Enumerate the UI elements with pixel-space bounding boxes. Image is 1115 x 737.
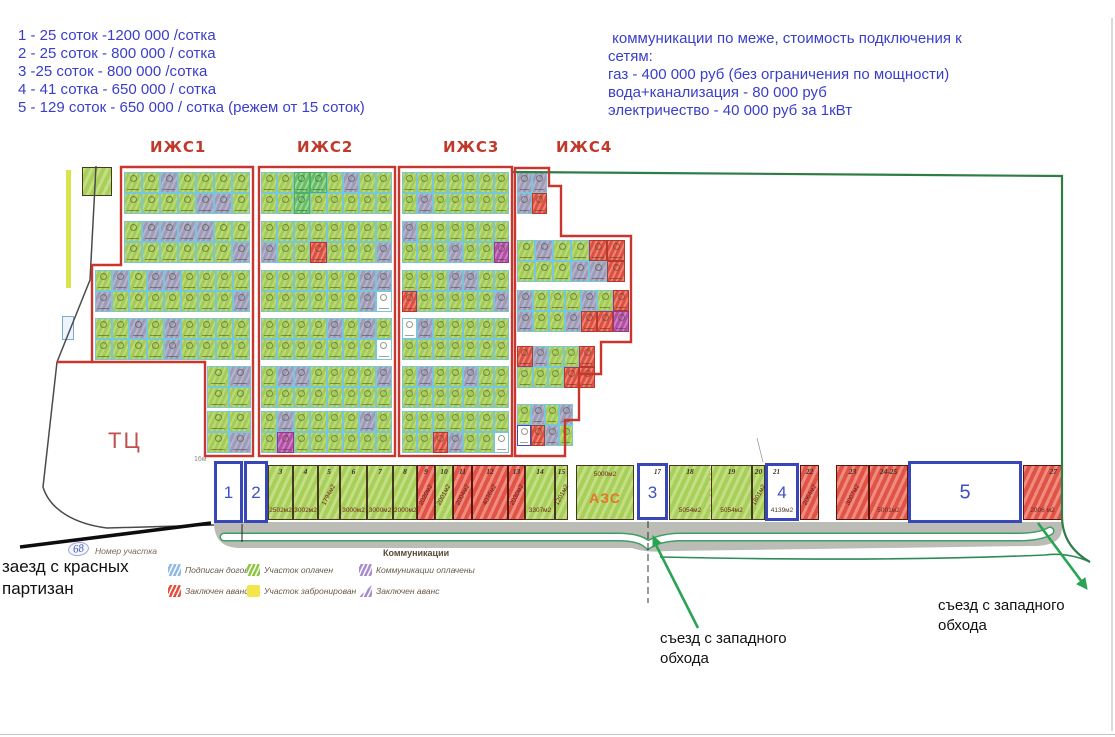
plot-strip-row: [402, 291, 509, 312]
legend-item: Заключен аванс: [168, 585, 249, 597]
mini-plot: [277, 172, 293, 193]
plot-3: 32502м2: [268, 465, 293, 520]
mini-plot: [417, 221, 432, 242]
plot-number: 8: [394, 467, 416, 476]
mini-plot: [565, 290, 581, 311]
purple-triangle-swatch: [359, 585, 372, 597]
mini-plot: [229, 411, 251, 432]
legend-item: Участок оплачен: [247, 564, 333, 576]
mini-plot: [376, 291, 392, 312]
mini-plot: [124, 242, 142, 263]
plot-strip-row: [207, 366, 251, 387]
mini-plot: [232, 172, 250, 193]
mini-plot: [433, 318, 448, 339]
gas-station-label: АЗС: [577, 490, 633, 506]
plot-number: 19: [712, 467, 751, 476]
road-stripe-fill: [224, 531, 1050, 545]
plot-strip-row: [261, 387, 392, 408]
mini-plot: [343, 270, 359, 291]
mini-plot: [359, 172, 375, 193]
mini-plot: [294, 366, 310, 387]
mini-plot: [359, 366, 375, 387]
plot-area: 5000м2: [577, 471, 633, 478]
mini-plot: [535, 240, 553, 261]
mini-plot: [376, 366, 392, 387]
plot-strip-izhs3: [402, 172, 509, 214]
plot-area: 3002м2: [294, 507, 317, 514]
mini-plot: [517, 240, 535, 261]
plot-area: 2001м2: [436, 484, 453, 507]
mini-plot: [478, 411, 493, 432]
plot-strip-izhs4: [517, 290, 629, 332]
mini-plot: [327, 318, 343, 339]
underlying-plot-number: 17: [654, 468, 661, 476]
mini-plot: [549, 311, 565, 332]
plot-strip-izhs1: [95, 270, 250, 312]
mini-plot: [463, 432, 478, 453]
legend-item-label: Участок забронирован: [264, 586, 356, 596]
mini-plot: [494, 242, 509, 263]
plot-strip-row: [261, 193, 392, 214]
mini-plot: [463, 318, 478, 339]
mini-plot: [478, 432, 493, 453]
mini-plot: [533, 346, 549, 367]
mini-plot: [112, 339, 129, 360]
exit-arrow-left: [653, 536, 698, 628]
mini-plot: [417, 387, 432, 408]
mini-plot: [517, 425, 531, 446]
zone-label-ижс4: ИЖС4: [556, 138, 612, 156]
plot-strip-row: [261, 339, 392, 360]
plot-strip-row: [517, 290, 629, 311]
shopping-center-label: ТЦ: [108, 428, 142, 454]
mini-plot: [327, 366, 343, 387]
mini-plot: [517, 311, 533, 332]
mini-plot: [277, 291, 293, 312]
plot-area: 4036м2: [482, 484, 499, 507]
mini-plot: [160, 172, 178, 193]
mini-plot: [402, 339, 417, 360]
mini-plot: [207, 387, 229, 408]
plot-strip-row: [261, 291, 392, 312]
mini-plot: [359, 193, 375, 214]
plot-strip-row: [261, 172, 392, 193]
plot-number: 14: [526, 467, 554, 476]
mini-plot: [417, 270, 432, 291]
plot-strip-row: [402, 411, 509, 432]
mini-plot: [129, 318, 146, 339]
mini-plot: [417, 172, 432, 193]
mini-plot: [142, 242, 160, 263]
underlying-plot-number: 21: [773, 468, 780, 476]
mini-plot: [343, 387, 359, 408]
mini-plot: [448, 318, 463, 339]
mini-plot: [448, 366, 463, 387]
mini-plot: [463, 339, 478, 360]
plot-number: 24-25: [870, 467, 907, 476]
mini-plot: [196, 193, 214, 214]
mini-plot: [533, 290, 549, 311]
mini-plot: [571, 261, 589, 282]
mini-plot: [164, 318, 181, 339]
mini-plot: [376, 339, 392, 360]
plot-strip-row: [95, 291, 250, 312]
mini-plot: [417, 411, 432, 432]
corner-green-plot: [82, 167, 112, 196]
mini-plot: [517, 172, 532, 193]
highlight-box-label: 2: [247, 483, 265, 503]
plot-strip-row: [517, 261, 625, 282]
mini-plot: [261, 318, 277, 339]
mini-plot: [343, 172, 359, 193]
mini-plot: [214, 193, 232, 214]
plot-number: 6: [341, 467, 366, 476]
mini-plot: [517, 346, 533, 367]
plot-12: 124036м2: [472, 465, 508, 520]
plot-area: 1794м2: [321, 484, 338, 507]
plot-strip-row: [517, 404, 573, 425]
plot-strip-row: [207, 387, 251, 408]
plot-number: 9: [418, 467, 434, 476]
plot-18: 185054м2: [669, 465, 711, 520]
mini-plot: [277, 318, 293, 339]
plot-number-badge: 68: [67, 541, 90, 558]
plot-strip-row: [402, 193, 509, 214]
mini-plot: [294, 242, 310, 263]
plot-number: 27: [1024, 467, 1061, 476]
mini-plot: [463, 242, 478, 263]
mini-plot: [433, 432, 448, 453]
plot-area: 2004м2: [454, 484, 471, 507]
mini-plot: [376, 270, 392, 291]
plot-14: 143307м2: [525, 465, 555, 520]
plot-9: 92020м2: [417, 465, 435, 520]
price-line: 5 - 129 соток - 650 000 / сотка (режем о…: [18, 99, 365, 117]
mini-plot: [553, 240, 571, 261]
mini-plot: [494, 411, 509, 432]
plot-strip-izhs3: [402, 318, 509, 360]
mini-plot: [607, 261, 625, 282]
highlight-box-label: 4: [768, 483, 796, 503]
mini-plot: [147, 339, 164, 360]
mini-plot: [232, 242, 250, 263]
mini-plot: [494, 172, 509, 193]
mini-plot: [343, 291, 359, 312]
mini-plot: [359, 411, 375, 432]
mini-plot: [178, 193, 196, 214]
mini-plot: [448, 411, 463, 432]
mini-plot: [216, 270, 233, 291]
plot-number: 15: [556, 467, 567, 476]
legend-item-label: Коммуникации оплачены: [376, 565, 475, 575]
plot-19: 195054м2: [711, 465, 752, 520]
mini-plot: [310, 432, 326, 453]
mini-plot: [232, 221, 250, 242]
mini-plot: [376, 242, 392, 263]
plot-strip-row: [402, 339, 509, 360]
utilities-line: газ - 400 000 руб (без ограничения по мо…: [608, 66, 962, 84]
plot-area: 5054м2: [670, 507, 710, 514]
mini-plot: [261, 270, 277, 291]
plot-area: 2020м2: [418, 484, 435, 507]
plot-strip-row: [517, 425, 573, 446]
mini-plot: [517, 193, 532, 214]
mini-plot: [433, 242, 448, 263]
plot-strip-izhs1: [207, 366, 251, 408]
mini-plot: [277, 221, 293, 242]
mini-plot: [448, 432, 463, 453]
mini-plot: [359, 339, 375, 360]
mini-plot: [463, 291, 478, 312]
mini-plot: [448, 193, 463, 214]
mini-plot: [548, 367, 564, 388]
plot-strip-izhs4: [517, 240, 625, 282]
mini-plot: [294, 221, 310, 242]
mini-plot: [559, 404, 573, 425]
plot-area: 3000м2: [341, 507, 366, 514]
mini-plot: [277, 193, 293, 214]
mini-plot: [181, 339, 198, 360]
mini-plot: [463, 366, 478, 387]
mini-plot: [448, 387, 463, 408]
mini-plot: [494, 366, 509, 387]
highlight-box-label: 5: [911, 481, 1019, 504]
mini-plot: [310, 242, 326, 263]
plot-area: 3000м2: [368, 507, 392, 514]
legend-item-label: Заключен аванс: [376, 586, 440, 596]
mini-plot: [294, 411, 310, 432]
highlight-box-label: 1: [217, 483, 240, 503]
mini-plot: [164, 291, 181, 312]
plot-number: 22: [801, 467, 818, 476]
mini-plot: [433, 270, 448, 291]
mini-plot: [310, 318, 326, 339]
mini-plot: [229, 432, 251, 453]
zone-label-ижс1: ИЖС1: [150, 138, 206, 156]
mini-plot: [494, 291, 509, 312]
plot-strip-row: [402, 318, 509, 339]
mini-plot: [433, 387, 448, 408]
mini-plot: [310, 221, 326, 242]
mini-plot: [142, 172, 160, 193]
mini-plot: [207, 366, 229, 387]
plot-area: 2030м2: [508, 484, 525, 507]
mini-plot: [95, 339, 112, 360]
mini-plot: [343, 193, 359, 214]
plot-strip-row: [261, 411, 392, 432]
mini-plot: [95, 291, 112, 312]
mini-plot: [579, 346, 595, 367]
plot-strip-row: [261, 270, 392, 291]
plot-number: 23: [837, 467, 868, 476]
mini-plot: [549, 290, 565, 311]
plot-5: 51794м2: [318, 465, 340, 520]
mini-plot: [112, 291, 129, 312]
plot-strip-row: [95, 270, 250, 291]
mini-plot: [417, 193, 432, 214]
highlight-box-3: 317: [637, 463, 668, 520]
plot-strip-row: [517, 172, 547, 193]
mini-plot: [261, 432, 277, 453]
mini-plot: [376, 432, 392, 453]
price-line: 4 - 41 сотка - 650 000 / сотка: [18, 81, 365, 99]
plot-number: 13: [509, 467, 524, 476]
plot-strip-row: [95, 318, 250, 339]
plot-number: 18: [670, 467, 710, 476]
legend-title: Коммуникации: [383, 548, 449, 558]
mini-plot: [376, 193, 392, 214]
mini-plot: [359, 242, 375, 263]
plot-strip-row: [402, 387, 509, 408]
plot-number: 12: [473, 467, 507, 476]
mini-plot: [533, 311, 549, 332]
plot-area: 1201м2: [553, 484, 570, 507]
mini-plot: [327, 193, 343, 214]
plot-strip-izhs1: [207, 411, 251, 453]
exit-arrow-right: [1038, 523, 1087, 589]
mini-plot: [359, 387, 375, 408]
mini-plot: [597, 311, 613, 332]
mini-plot: [559, 425, 573, 446]
plot-22: 222064м2: [800, 465, 819, 520]
plot-strip-row: [124, 172, 250, 193]
plot-strip-izhs2: [261, 318, 392, 360]
mini-plot: [207, 432, 229, 453]
mini-plot: [494, 193, 509, 214]
leader-above-box4: [757, 438, 763, 462]
plot-strip-izhs2: [261, 221, 392, 263]
mini-plot: [532, 193, 547, 214]
blue-hatch-swatch: [168, 564, 181, 576]
plot-27: 272006 м2: [1023, 465, 1062, 520]
mini-plot: [581, 311, 597, 332]
plot-strip-izhs2: [261, 172, 392, 214]
mini-plot: [597, 290, 613, 311]
mini-plot: [147, 270, 164, 291]
mini-plot: [124, 221, 142, 242]
mini-plot: [233, 339, 250, 360]
mini-plot: [463, 193, 478, 214]
mini-plot: [448, 172, 463, 193]
plot-strip-row: [261, 221, 392, 242]
utilities-info: коммуникации по меже, стоимость подключе…: [608, 30, 962, 120]
mini-plot: [160, 221, 178, 242]
mini-plot: [463, 221, 478, 242]
mini-plot: [417, 339, 432, 360]
mini-plot: [164, 339, 181, 360]
mini-plot: [216, 318, 233, 339]
mini-plot: [261, 291, 277, 312]
mini-plot: [147, 291, 164, 312]
mini-plot: [343, 221, 359, 242]
legend-item: Участок забронирован: [247, 585, 356, 597]
legend-item-label: Заключен аванс: [185, 586, 249, 596]
legend-item: Заключен аванс: [359, 585, 440, 597]
mini-plot: [310, 387, 326, 408]
mini-plot: [216, 339, 233, 360]
mini-plot: [478, 339, 493, 360]
mini-plot: [478, 221, 493, 242]
mini-plot: [261, 339, 277, 360]
plot-strip-row: [517, 311, 629, 332]
mini-plot: [463, 172, 478, 193]
plot-strip-row: [402, 172, 509, 193]
mini-plot: [261, 411, 277, 432]
plot-number: 10: [436, 467, 452, 476]
mini-plot: [310, 270, 326, 291]
mini-plot: [402, 318, 417, 339]
mini-plot: [548, 346, 564, 367]
mini-plot: [198, 339, 215, 360]
mini-plot: [433, 291, 448, 312]
mini-plot: [402, 221, 417, 242]
mini-plot: [277, 387, 293, 408]
mini-plot: [402, 432, 417, 453]
plot-strip-row: [124, 221, 250, 242]
mini-plot: [124, 193, 142, 214]
mini-plot: [277, 339, 293, 360]
mini-plot: [112, 318, 129, 339]
mini-plot: [142, 221, 160, 242]
mini-plot: [160, 193, 178, 214]
utilities-line: вода+канализация - 80 000 руб: [608, 84, 962, 102]
mini-plot: [478, 270, 493, 291]
mini-plot: [261, 172, 277, 193]
plot-strip-izhs2: [261, 411, 392, 453]
plot-strip-row: [402, 242, 509, 263]
mini-plot: [129, 339, 146, 360]
plot-area: 5054м2: [712, 507, 751, 514]
mini-plot: [196, 242, 214, 263]
mini-plot: [310, 366, 326, 387]
mini-plot: [607, 240, 625, 261]
utilities-line: сетям:: [608, 48, 962, 66]
mini-plot: [129, 270, 146, 291]
mini-plot: [343, 242, 359, 263]
plot-strip-row: [402, 221, 509, 242]
plot-strip-row: [124, 193, 250, 214]
mini-plot: [376, 411, 392, 432]
mini-plot: [402, 193, 417, 214]
plot-area: 2502м2: [269, 507, 292, 514]
plot-15: 151201м2: [555, 465, 568, 520]
plot-20: 201801м2: [752, 465, 765, 520]
mini-plot: [448, 242, 463, 263]
mini-plot: [232, 193, 250, 214]
price-line: 1 - 25 соток -1200 000 /сотка: [18, 27, 365, 45]
plot-strip-row: [402, 366, 509, 387]
plot-4: 43002м2: [293, 465, 318, 520]
highlight-box-label: 3: [640, 482, 665, 502]
mini-plot: [310, 339, 326, 360]
plot-strip-izhs4: [517, 404, 573, 446]
mini-plot: [433, 366, 448, 387]
mini-plot: [402, 366, 417, 387]
zone-label-ижс3: ИЖС3: [443, 138, 499, 156]
mini-plot: [198, 291, 215, 312]
mini-plot: [198, 270, 215, 291]
mini-plot: [517, 404, 531, 425]
mini-plot: [214, 221, 232, 242]
plot-strip-izhs3: [402, 411, 509, 453]
mini-plot: [581, 290, 597, 311]
mini-plot: [359, 221, 375, 242]
road-stripe-outline: [224, 531, 1050, 545]
mini-plot: [478, 366, 493, 387]
yellow-swatch: [247, 585, 260, 597]
legend-item-label: Участок оплачен: [264, 565, 333, 575]
highlight-box-5: 5: [908, 461, 1022, 523]
